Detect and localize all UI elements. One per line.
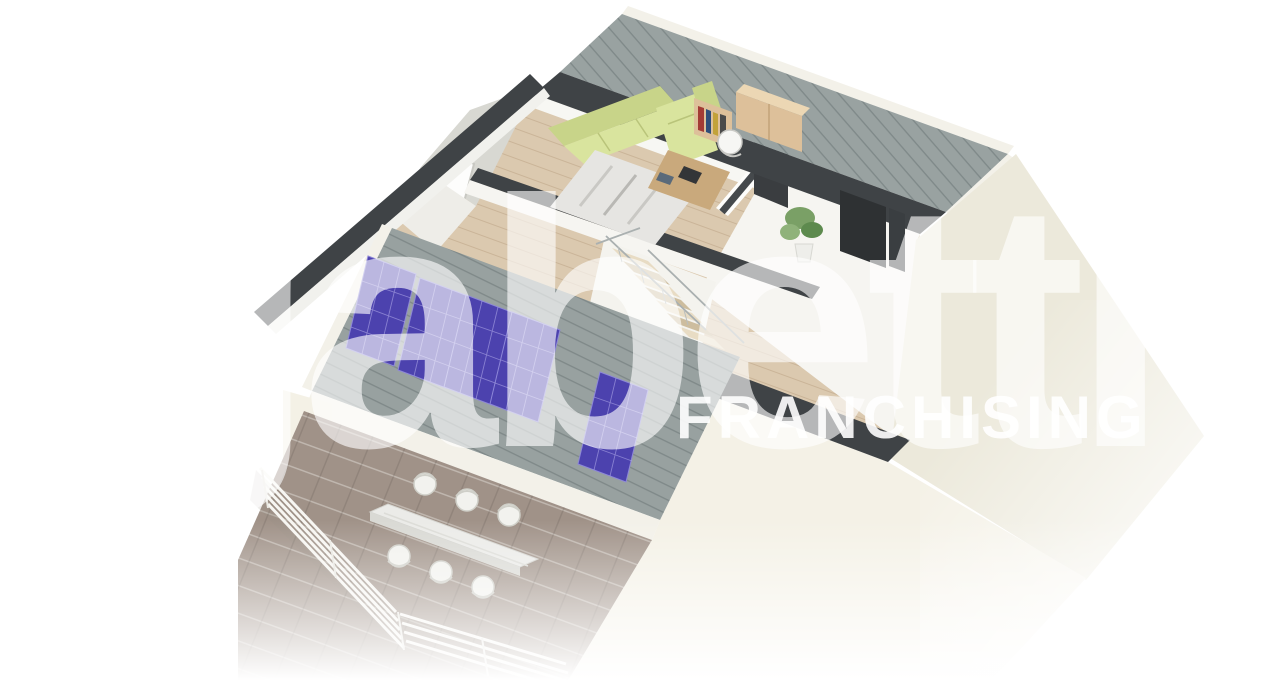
floor-plan-render: gabetti FRANCHISING — [0, 0, 1280, 684]
interior-door-panel — [889, 208, 905, 272]
dining-chair — [456, 489, 478, 511]
right-fade — [920, 300, 1280, 684]
dining-chair — [414, 473, 436, 495]
house-3d-scene — [0, 0, 1280, 684]
